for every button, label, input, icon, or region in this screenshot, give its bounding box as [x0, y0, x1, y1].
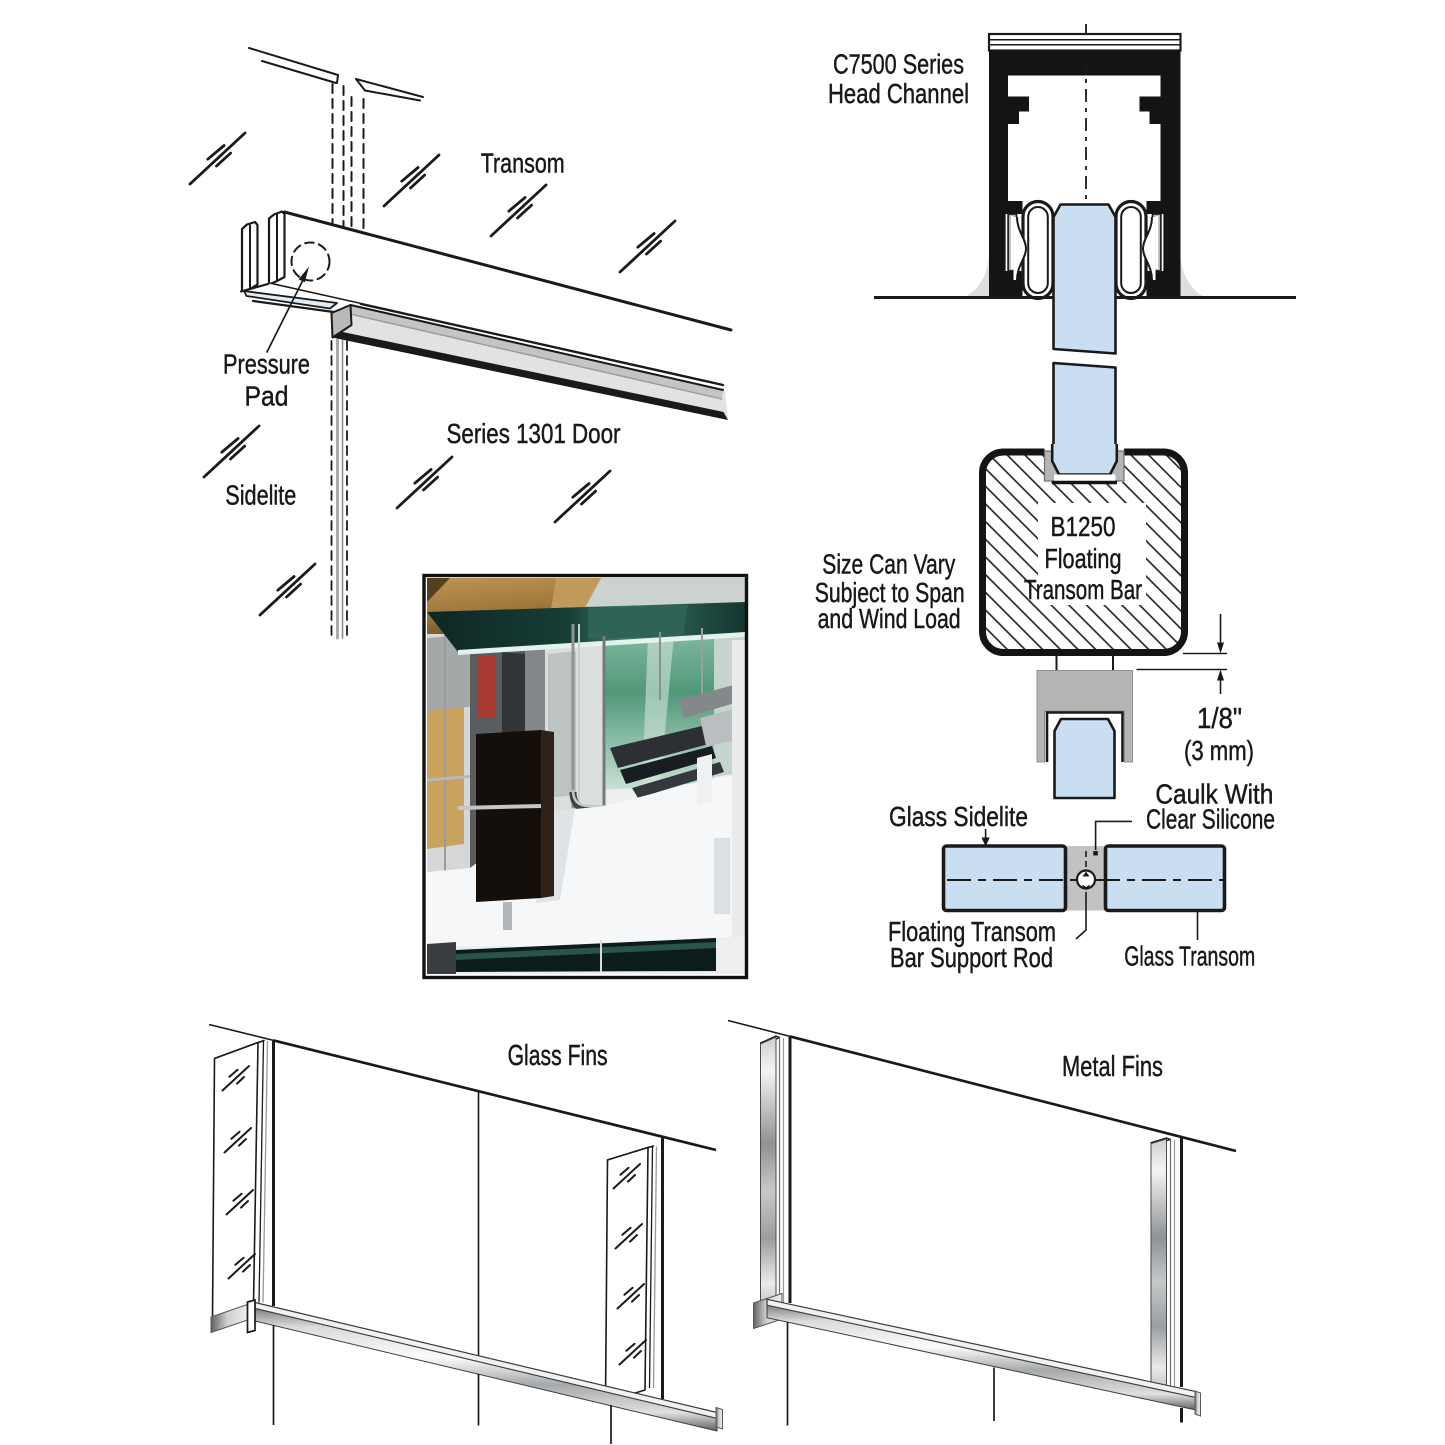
svg-text:Glass Sidelite: Glass Sidelite [889, 801, 1028, 832]
svg-text:Pressure: Pressure [223, 349, 310, 380]
svg-text:(3 mm): (3 mm) [1184, 735, 1254, 766]
svg-text:B1250: B1250 [1051, 511, 1116, 542]
svg-text:Size Can Vary: Size Can Vary [822, 549, 955, 580]
svg-text:Glass Transom: Glass Transom [1124, 941, 1255, 972]
svg-text:1/8": 1/8" [1197, 703, 1242, 735]
svg-text:Glass Fins: Glass Fins [508, 1040, 608, 1072]
svg-text:Head Channel: Head Channel [828, 78, 969, 109]
svg-text:Pad: Pad [245, 381, 289, 412]
svg-text:C7500 Series: C7500 Series [833, 49, 964, 80]
svg-text:Metal Fins: Metal Fins [1062, 1051, 1163, 1083]
svg-text:Transom Bar: Transom Bar [1024, 574, 1142, 605]
svg-text:Sidelite: Sidelite [225, 480, 296, 511]
svg-text:Series 1301 Door: Series 1301 Door [447, 418, 621, 449]
svg-text:Floating: Floating [1045, 543, 1122, 574]
svg-text:Clear Silicone: Clear Silicone [1146, 804, 1275, 835]
svg-text:Bar Support Rod: Bar Support Rod [890, 942, 1053, 973]
svg-text:and Wind Load: and Wind Load [818, 603, 961, 634]
svg-text:Transom: Transom [481, 147, 565, 178]
